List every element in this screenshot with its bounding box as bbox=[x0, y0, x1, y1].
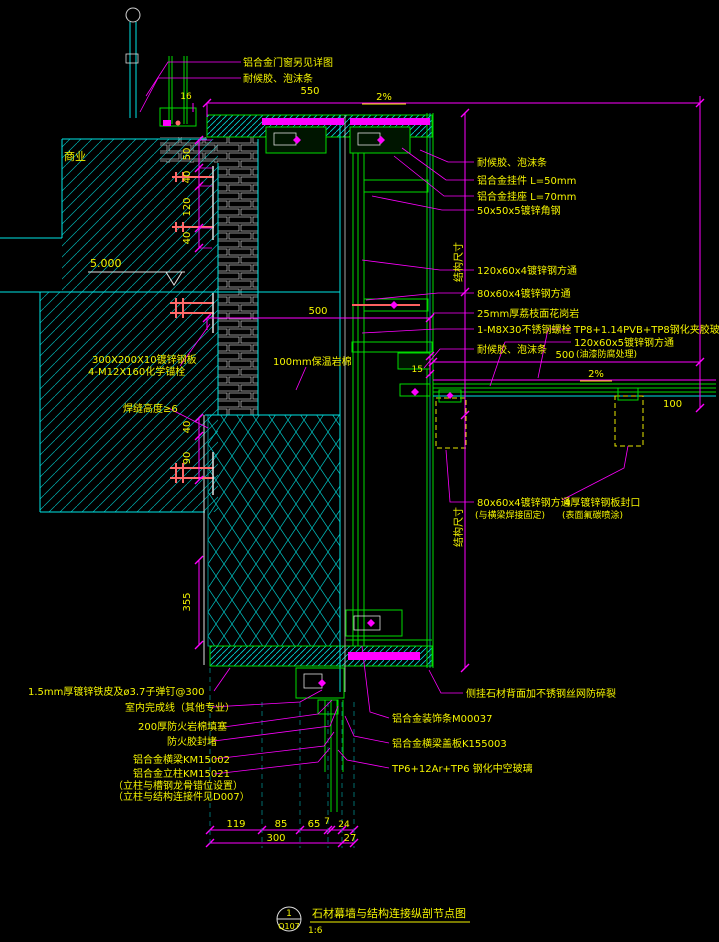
dim-355: 355 bbox=[182, 592, 193, 611]
dim-slope-canopy: 2% bbox=[588, 369, 604, 380]
label-tube-note-b: (与横梁焊接固定) bbox=[475, 509, 545, 521]
label-bolt-m8x30: 1-M8X30不锈钢螺栓 bbox=[477, 323, 572, 336]
window-mullion bbox=[126, 8, 196, 126]
label-steel-plate: 300X200X10镀锌钢板 bbox=[92, 353, 197, 366]
label-granite-25: 25mm厚荔枝面花岗岩 bbox=[477, 307, 579, 320]
dim-550: 550 bbox=[300, 86, 319, 97]
title-block: 1 Q107 石材幕墙与结构连接纵剖节点图 1:6 bbox=[277, 906, 470, 936]
label-tube-80x60x4: 80x60x4镀锌钢方通 bbox=[477, 287, 571, 300]
stone-bar bbox=[262, 118, 344, 125]
dim-500-mid: 500 bbox=[308, 306, 327, 317]
label-fire-sealant: 防火胶封堵 bbox=[167, 735, 217, 748]
steel-tube-dashed bbox=[436, 398, 466, 448]
dim-120: 120 bbox=[182, 197, 193, 216]
label-galv-sheet: 1.5mm厚镀锌铁皮及ø3.7子弹钉@300 bbox=[28, 685, 205, 698]
label-level: 5.000 bbox=[90, 257, 122, 270]
label-igu-glass: TP6+12Ar+TP6 钢化中空玻璃 bbox=[391, 762, 533, 775]
dim-100: 100 bbox=[663, 399, 682, 410]
dim-27: 27 bbox=[344, 833, 357, 844]
dim-40b: 40 bbox=[182, 232, 193, 245]
label-window-detail: 铝合金门窗另见详图 bbox=[243, 56, 333, 69]
label-seat-70: 铝合金挂座 L=70mm bbox=[477, 190, 576, 203]
label-beam-km15002: 铝合金横梁KM15002 bbox=[133, 753, 230, 766]
label-tube-note: (油漆防腐处理) bbox=[576, 348, 637, 360]
label-cover-k155003: 铝合金横梁盖板K155003 bbox=[392, 737, 507, 750]
label-chem-anchor: 4-M12X160化学锚栓 bbox=[88, 365, 185, 378]
label-insulation-100: 100mm保温岩棉 bbox=[273, 355, 352, 368]
detail-number: 1 bbox=[286, 909, 292, 919]
label-tube-120x60x5: 120x60x5镀锌钢方通 bbox=[574, 336, 674, 349]
label-zone: 商业 bbox=[64, 149, 86, 163]
dim-500-canopy: 500 bbox=[555, 350, 574, 361]
label-hanger-50: 铝合金挂件 L=50mm bbox=[477, 174, 576, 187]
mullion-profiles bbox=[353, 113, 433, 668]
label-sealant-top: 耐候胶、泡沫条 bbox=[243, 72, 313, 85]
dim-65: 65 bbox=[308, 819, 321, 830]
label-stone-mesh: 侧挂石材背面加不锈钢丝网防碎裂 bbox=[466, 687, 616, 700]
label-column-note1: （立柱与槽钢龙骨错位设置） bbox=[113, 779, 243, 792]
label-tube-80x60x4-b: 80x60x4镀锌钢方通 bbox=[477, 496, 571, 509]
label-column-km15021: 铝合金立柱KM15021 bbox=[133, 767, 230, 780]
cad-drawing-canvas: 铝合金门窗另见详图 耐候胶、泡沫条 耐候胶、泡沫条 铝合金挂件 L=50mm 铝… bbox=[0, 0, 719, 942]
dim-90: 90 bbox=[182, 452, 193, 465]
dim-50: 50 bbox=[182, 148, 193, 161]
dim-119: 119 bbox=[226, 819, 245, 830]
label-struct-dim-2: 结构尺寸 bbox=[452, 507, 465, 547]
label-end-plate: 4厚镀锌钢板封口 bbox=[564, 496, 640, 509]
dim-40c: 40 bbox=[182, 421, 193, 434]
stone-bar bbox=[350, 118, 430, 125]
dim-24: 24 bbox=[338, 820, 350, 830]
label-column-note2: （立柱与结构连接件见D007） bbox=[113, 790, 250, 803]
label-fire-wool: 200厚防火岩棉填塞 bbox=[138, 720, 227, 733]
label-sealant-r11: 耐候胶、泡沫条 bbox=[477, 343, 547, 356]
dim-40a: 40 bbox=[182, 171, 193, 184]
dim-85: 85 bbox=[275, 819, 288, 830]
sheet-reference: Q107 bbox=[278, 922, 300, 931]
rockwool-insulation bbox=[208, 415, 340, 646]
label-weld-height: 焊缝高度≥6 bbox=[123, 402, 178, 415]
label-trim-m00037: 铝合金装饰条M00037 bbox=[392, 712, 492, 725]
dim-slope-top: 2% bbox=[376, 92, 392, 103]
label-tube-120x60x4: 120x60x4镀锌钢方通 bbox=[477, 264, 577, 277]
dim-300: 300 bbox=[266, 833, 285, 844]
dim-16: 16 bbox=[180, 92, 192, 102]
label-end-plate-note: (表面氟碳喷涂) bbox=[562, 509, 623, 521]
label-angle-steel: 50x50x5镀锌角钢 bbox=[477, 204, 561, 217]
label-laminated-glass: TP8+1.14PVB+TP8钢化夹胶玻璃 bbox=[573, 323, 719, 336]
detail-drawing: 铝合金门窗另见详图 耐候胶、泡沫条 耐候胶、泡沫条 铝合金挂件 L=50mm 铝… bbox=[0, 0, 719, 942]
label-finish-line: 室内完成线（其他专业） bbox=[125, 701, 235, 714]
dim-7: 7 bbox=[324, 817, 330, 827]
dim-15: 15 bbox=[412, 365, 423, 375]
label-sealant-r1: 耐候胶、泡沫条 bbox=[477, 156, 547, 169]
label-struct-dim-1: 结构尺寸 bbox=[452, 242, 465, 282]
canopy-glass bbox=[433, 380, 716, 396]
drawing-scale: 1:6 bbox=[308, 926, 323, 936]
drawing-title: 石材幕墙与结构连接纵剖节点图 bbox=[312, 906, 466, 920]
end-cap-dashed bbox=[615, 396, 643, 446]
